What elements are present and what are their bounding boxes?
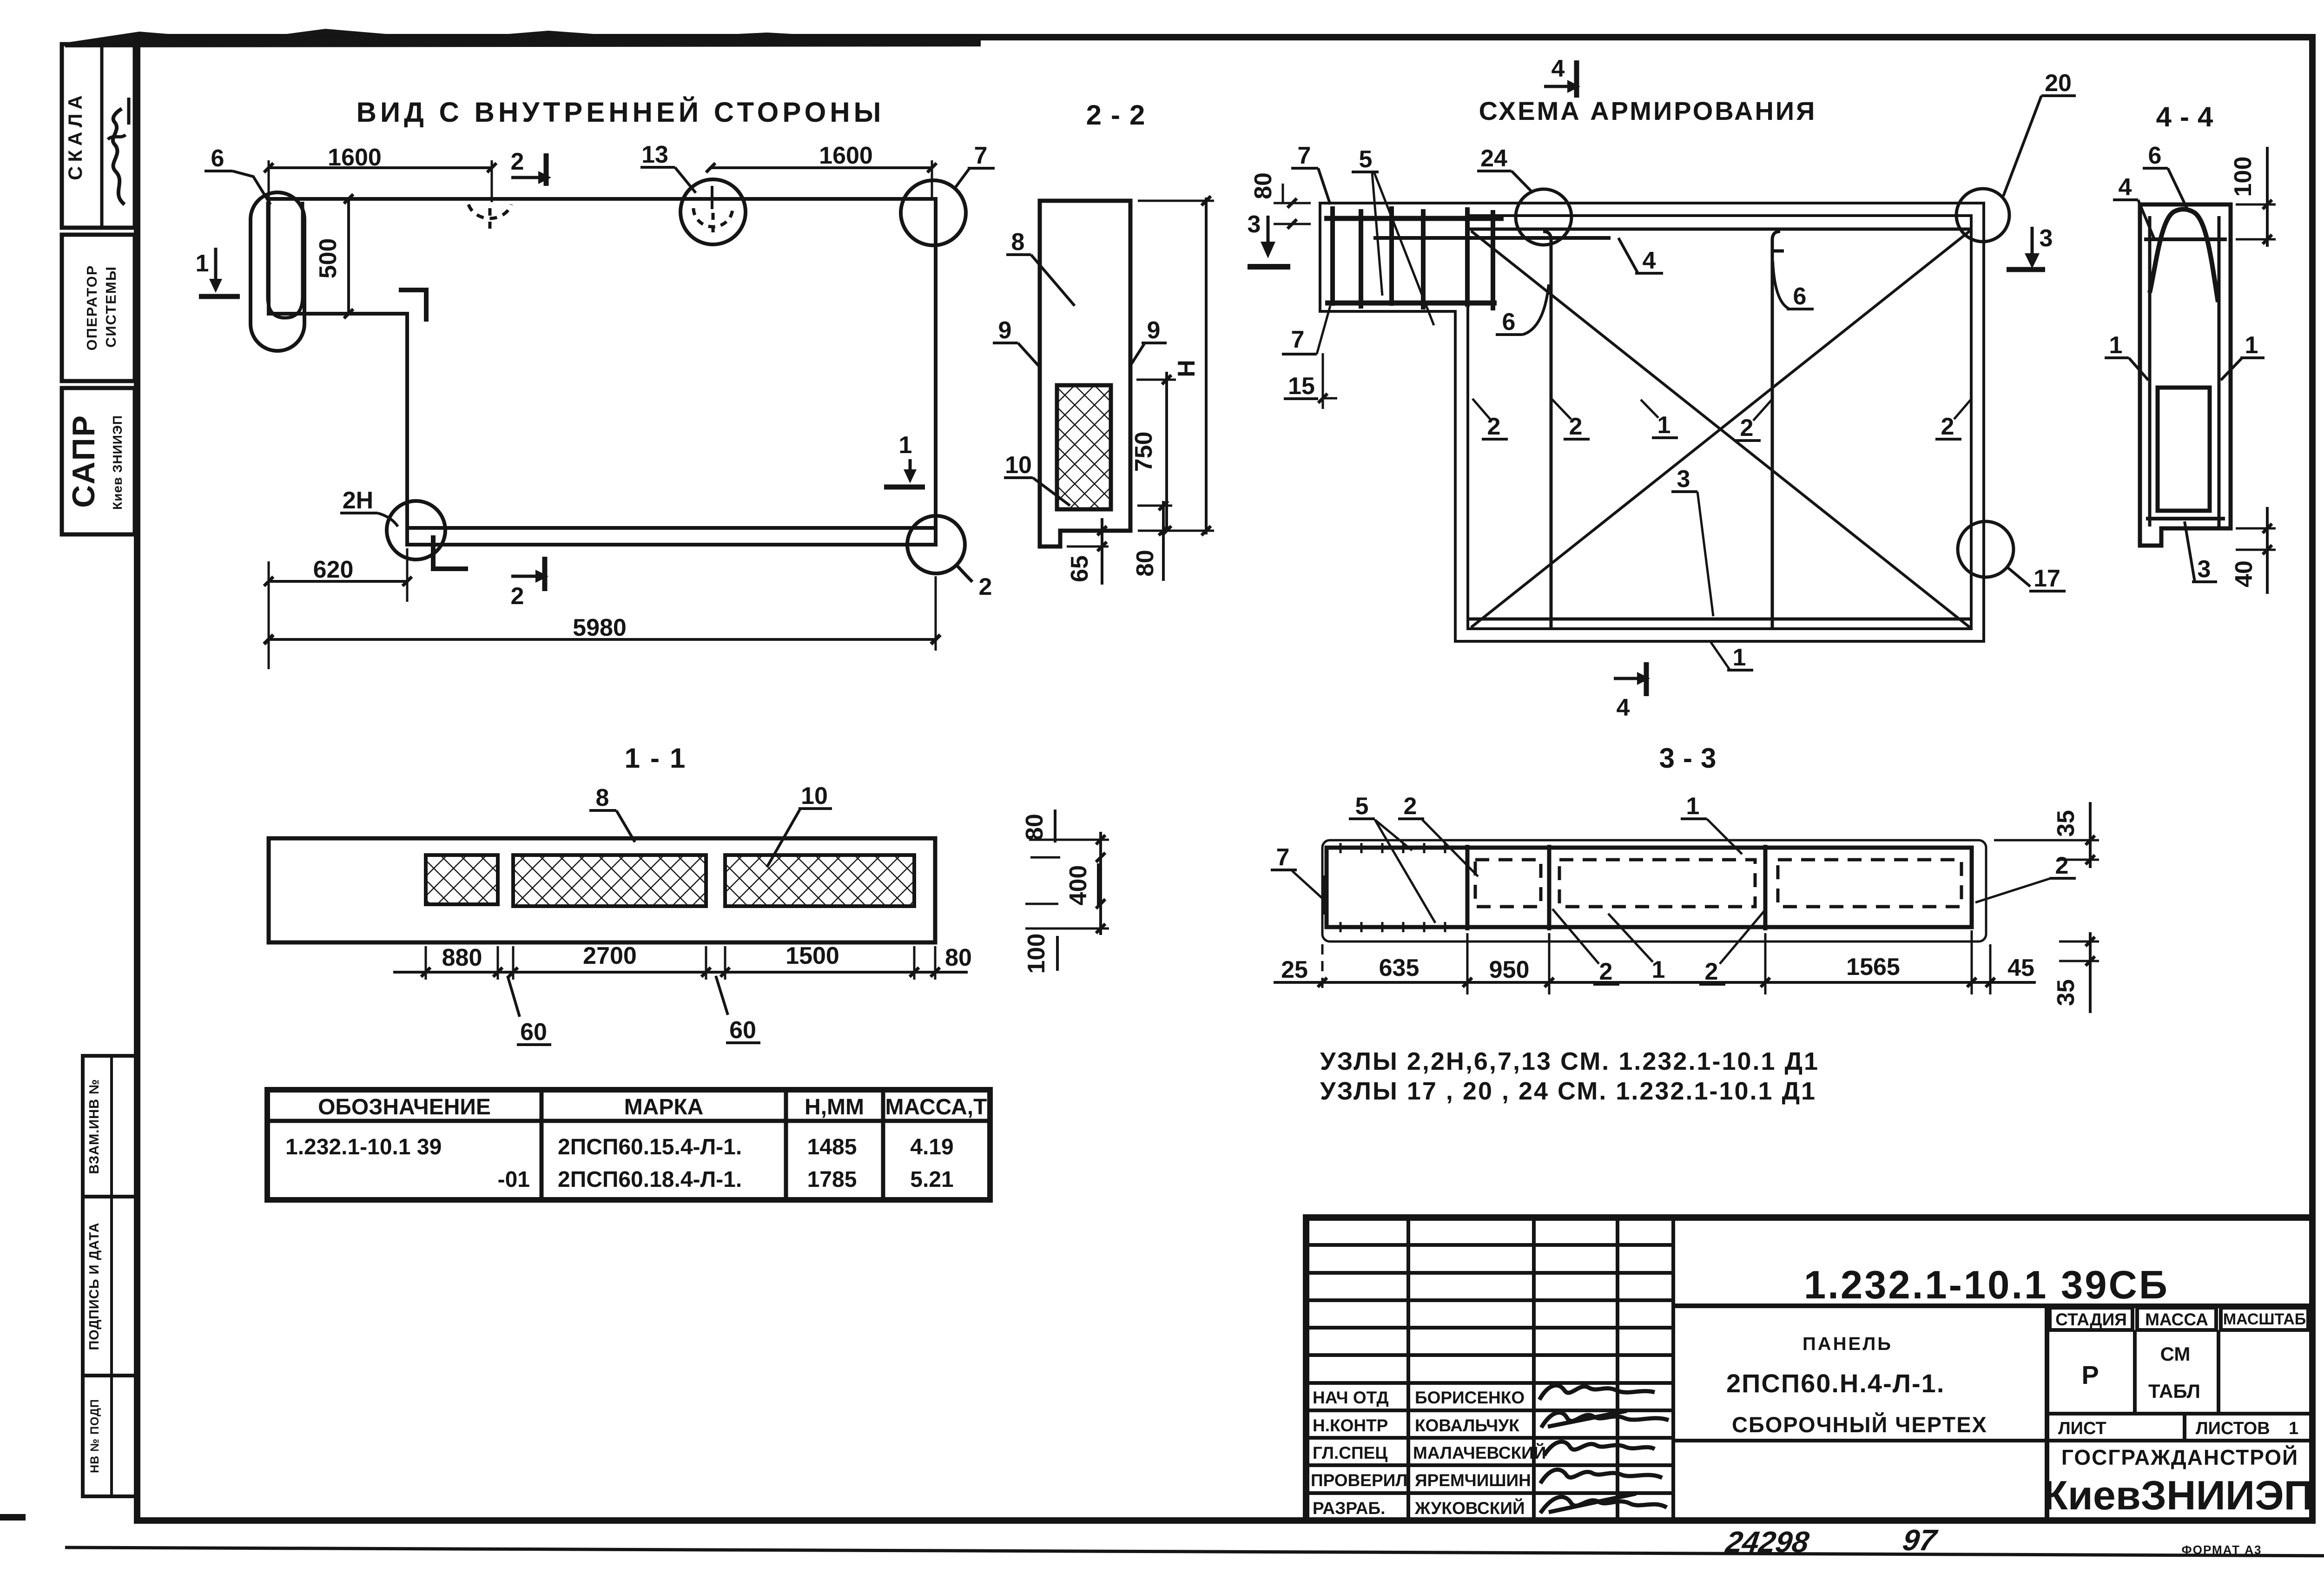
- svg-text:Н.КОНТР: Н.КОНТР: [1313, 1416, 1388, 1435]
- svg-text:17: 17: [2033, 565, 2060, 592]
- svg-text:МАССА: МАССА: [2145, 1310, 2208, 1329]
- svg-text:9: 9: [998, 317, 1012, 344]
- svg-text:Н: Н: [1173, 360, 1200, 377]
- svg-text:15: 15: [1288, 373, 1315, 400]
- svg-text:1: 1: [2109, 332, 2123, 359]
- svg-text:100: 100: [1023, 934, 1050, 974]
- svg-text:САПР: САПР: [66, 414, 101, 508]
- svg-text:500: 500: [315, 238, 342, 279]
- svg-text:1: 1: [899, 432, 912, 459]
- svg-text:ТАБЛ: ТАБЛ: [2148, 1380, 2200, 1402]
- svg-text:1565: 1565: [1846, 954, 1900, 981]
- svg-text:80: 80: [1021, 814, 1048, 841]
- svg-text:ПРОВЕРИЛ: ПРОВЕРИЛ: [1311, 1471, 1407, 1490]
- svg-text:7: 7: [1276, 844, 1290, 871]
- svg-text:4: 4: [1552, 55, 1565, 82]
- svg-text:МАССА,Т: МАССА,Т: [885, 1095, 987, 1119]
- svg-text:1: 1: [1657, 412, 1671, 439]
- svg-text:2: 2: [1404, 793, 1417, 820]
- svg-text:25: 25: [1281, 956, 1308, 983]
- svg-text:13: 13: [641, 141, 668, 168]
- svg-text:2: 2: [1941, 413, 1954, 440]
- svg-text:3: 3: [2198, 556, 2211, 583]
- svg-text:9: 9: [1147, 317, 1161, 344]
- svg-text:1: 1: [1733, 644, 1746, 671]
- svg-text:6: 6: [1502, 309, 1516, 336]
- svg-text:ГЛ.СПЕЦ: ГЛ.СПЕЦ: [1313, 1443, 1387, 1462]
- svg-text:60: 60: [520, 1019, 547, 1046]
- svg-text:80: 80: [945, 944, 972, 971]
- svg-text:2-2: 2-2: [1086, 99, 1155, 131]
- svg-text:ЛИСТОВ: ЛИСТОВ: [2196, 1419, 2270, 1438]
- svg-text:7: 7: [974, 142, 988, 169]
- svg-text:1600: 1600: [819, 142, 873, 169]
- svg-text:4-4: 4-4: [2156, 101, 2222, 132]
- svg-text:40: 40: [2231, 560, 2258, 587]
- svg-text:УЗЛЫ 17 , 20 , 24 СМ. 1.: УЗЛЫ 17 , 20 , 24 СМ. 1.232.1-10.1 Д1: [1320, 1077, 1816, 1105]
- svg-text:24298: 24298: [1723, 1525, 1811, 1559]
- svg-text:НВ № ПОДП: НВ № ПОДП: [88, 1399, 101, 1473]
- svg-text:3: 3: [1677, 466, 1690, 493]
- svg-text:СМ: СМ: [2160, 1343, 2191, 1365]
- svg-text:4.19: 4.19: [910, 1135, 953, 1159]
- svg-text:4: 4: [1617, 694, 1630, 721]
- svg-text:35: 35: [2053, 810, 2080, 837]
- svg-text:2ПСП60.18.4-Л-1.: 2ПСП60.18.4-Л-1.: [558, 1167, 742, 1192]
- svg-text:1: 1: [2289, 1419, 2298, 1438]
- svg-text:1: 1: [1686, 793, 1700, 820]
- svg-text:60: 60: [729, 1017, 756, 1044]
- svg-text:1500: 1500: [786, 942, 839, 969]
- svg-text:80: 80: [1132, 550, 1159, 577]
- svg-text:МАСШТАБ: МАСШТАБ: [2223, 1310, 2306, 1328]
- svg-text:10: 10: [1005, 452, 1032, 479]
- svg-text:МАРКА: МАРКА: [624, 1095, 704, 1119]
- svg-text:35: 35: [2053, 979, 2080, 1006]
- svg-text:8: 8: [596, 784, 609, 811]
- svg-text:ОБОЗНАЧЕНИЕ: ОБОЗНАЧЕНИЕ: [318, 1095, 491, 1119]
- svg-text:80: 80: [1250, 172, 1277, 199]
- svg-text:65: 65: [1066, 555, 1093, 582]
- svg-text:750: 750: [1130, 432, 1157, 472]
- svg-text:МАЛАЧЕВСКИЙ: МАЛАЧЕВСКИЙ: [1413, 1443, 1546, 1462]
- svg-text:2: 2: [1569, 413, 1583, 440]
- svg-text:Н,ММ: Н,ММ: [805, 1095, 864, 1119]
- svg-text:1-1: 1-1: [625, 743, 696, 774]
- svg-text:3: 3: [1248, 211, 1261, 238]
- svg-text:2: 2: [1599, 958, 1613, 985]
- svg-text:950: 950: [1489, 956, 1530, 983]
- svg-text:ФОРМАТ А3: ФОРМАТ А3: [2182, 1543, 2262, 1557]
- svg-text:ВЗАМ.ИНВ №: ВЗАМ.ИНВ №: [87, 1079, 102, 1174]
- svg-text:СБОРОЧНЫЙ ЧЕРТЕХ: СБОРОЧНЫЙ ЧЕРТЕХ: [1732, 1412, 1987, 1437]
- svg-text:ЯРЕМЧИШИН: ЯРЕМЧИШИН: [1415, 1471, 1531, 1490]
- svg-text:1: 1: [1652, 956, 1665, 983]
- svg-text:7: 7: [1291, 326, 1305, 353]
- svg-text:ЛИСТ: ЛИСТ: [2058, 1419, 2106, 1438]
- svg-text:2Н: 2Н: [343, 487, 373, 514]
- svg-text:УЗЛЫ 2,2Н,6,7,13 СМ. 1.232.: УЗЛЫ 2,2Н,6,7,13 СМ. 1.232.1-10.1 Д1: [1320, 1047, 1819, 1075]
- svg-text:2ПСП60.15.4-Л-1.: 2ПСП60.15.4-Л-1.: [558, 1135, 742, 1159]
- svg-text:635: 635: [1379, 955, 1419, 981]
- svg-text:1.232.1-10.1 39СБ: 1.232.1-10.1 39СБ: [1804, 1263, 2169, 1307]
- svg-text:100: 100: [2230, 157, 2257, 197]
- svg-text:1: 1: [2245, 332, 2258, 359]
- svg-text:2: 2: [979, 573, 992, 600]
- svg-text:ВИД С ВНУТРЕННЕЙ СТОРОНЫ: ВИД С ВНУТРЕННЕЙ СТОРОНЫ: [357, 97, 885, 128]
- svg-text:-01: -01: [498, 1167, 530, 1192]
- svg-text:КиевЗНИИЭП: КиевЗНИИЭП: [2043, 1472, 2313, 1518]
- svg-text:ПОДПИСЬ И ДАТА: ПОДПИСЬ И ДАТА: [87, 1222, 102, 1350]
- svg-text:2700: 2700: [583, 942, 637, 969]
- svg-text:СХЕМА АРМИРОВАНИЯ: СХЕМА АРМИРОВАНИЯ: [1479, 96, 1817, 125]
- svg-text:6: 6: [2148, 142, 2162, 169]
- svg-text:2: 2: [511, 148, 524, 175]
- svg-text:ЖУКОВСКИЙ: ЖУКОВСКИЙ: [1414, 1498, 1525, 1518]
- svg-text:Киев ЗНИИЭП: Киев ЗНИИЭП: [110, 415, 125, 510]
- svg-text:97: 97: [1901, 1523, 1940, 1557]
- svg-text:1: 1: [196, 250, 209, 277]
- svg-text:3-3: 3-3: [1659, 743, 1725, 774]
- svg-text:400: 400: [1065, 865, 1092, 906]
- svg-text:БОРИСЕНКО: БОРИСЕНКО: [1415, 1388, 1525, 1407]
- svg-text:2: 2: [1705, 958, 1718, 985]
- svg-text:ОПЕРАТОР: ОПЕРАТОР: [84, 265, 100, 351]
- svg-text:ПАНЕЛЬ: ПАНЕЛЬ: [1802, 1334, 1893, 1354]
- svg-text:СИСТЕМЫ: СИСТЕМЫ: [103, 266, 119, 348]
- svg-text:8: 8: [1011, 229, 1025, 256]
- svg-text:1485: 1485: [807, 1135, 857, 1159]
- svg-text:880: 880: [442, 944, 482, 971]
- svg-text:5.21: 5.21: [910, 1167, 953, 1192]
- svg-text:1600: 1600: [328, 144, 382, 171]
- svg-text:НАЧ ОТД: НАЧ ОТД: [1313, 1388, 1389, 1407]
- svg-text:24: 24: [1480, 145, 1507, 172]
- svg-text:КОВАЛЬЧУК: КОВАЛЬЧУК: [1415, 1416, 1519, 1435]
- svg-text:5980: 5980: [573, 614, 627, 641]
- svg-text:1785: 1785: [807, 1167, 857, 1192]
- svg-text:6: 6: [211, 145, 224, 172]
- svg-text:4: 4: [1643, 247, 1656, 274]
- svg-text:5: 5: [1359, 146, 1373, 173]
- svg-text:Р: Р: [2081, 1360, 2099, 1389]
- svg-text:2: 2: [511, 583, 524, 610]
- svg-text:РАЗРАБ.: РАЗРАБ.: [1313, 1499, 1385, 1518]
- svg-text:2ПСП60.Н.4-Л-1.: 2ПСП60.Н.4-Л-1.: [1726, 1369, 1945, 1398]
- svg-text:620: 620: [313, 556, 354, 583]
- svg-text:3: 3: [2040, 225, 2053, 252]
- svg-text:4: 4: [2119, 174, 2132, 201]
- svg-text:СТАДИЯ: СТАДИЯ: [2055, 1310, 2127, 1329]
- svg-text:5: 5: [1355, 793, 1369, 820]
- svg-text:ГОСГРАЖДАНСТРОЙ: ГОСГРАЖДАНСТРОЙ: [2061, 1445, 2298, 1469]
- svg-text:2: 2: [2055, 852, 2069, 879]
- svg-text:20: 20: [2045, 70, 2072, 97]
- svg-text:45: 45: [2007, 955, 2034, 981]
- svg-text:7: 7: [1298, 142, 1311, 169]
- svg-text:1.232.1-10.1 39: 1.232.1-10.1 39: [285, 1135, 442, 1159]
- svg-text:2: 2: [1740, 415, 1754, 441]
- svg-text:СКАЛА: СКАЛА: [64, 91, 86, 180]
- svg-text:10: 10: [801, 783, 828, 810]
- svg-text:6: 6: [1793, 283, 1807, 310]
